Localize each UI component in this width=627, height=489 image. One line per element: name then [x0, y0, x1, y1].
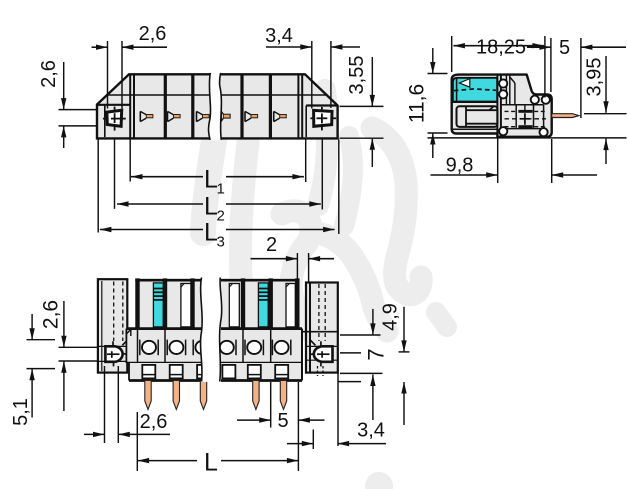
svg-text:3,4: 3,4 — [265, 25, 293, 47]
svg-text:5: 5 — [277, 410, 288, 432]
svg-text:18,25: 18,25 — [476, 37, 526, 59]
svg-text:11,6: 11,6 — [406, 84, 429, 123]
svg-text:5,1: 5,1 — [10, 398, 32, 426]
svg-text:2,6: 2,6 — [40, 300, 63, 329]
svg-text:L: L — [204, 449, 218, 477]
svg-text:2,6: 2,6 — [139, 23, 167, 45]
svg-text:2,6: 2,6 — [140, 411, 168, 433]
svg-text:9,8: 9,8 — [446, 155, 474, 177]
svg-text:5: 5 — [559, 37, 570, 59]
svg-text:2,6: 2,6 — [38, 60, 60, 88]
svg-text:3,95: 3,95 — [584, 58, 606, 97]
svg-text:3,55: 3,55 — [346, 56, 368, 95]
svg-text:7: 7 — [363, 348, 388, 360]
svg-text:3,4: 3,4 — [357, 420, 385, 442]
svg-text:2: 2 — [266, 234, 277, 256]
svg-text:4,9: 4,9 — [380, 303, 402, 331]
svg-text:3: 3 — [217, 234, 225, 251]
